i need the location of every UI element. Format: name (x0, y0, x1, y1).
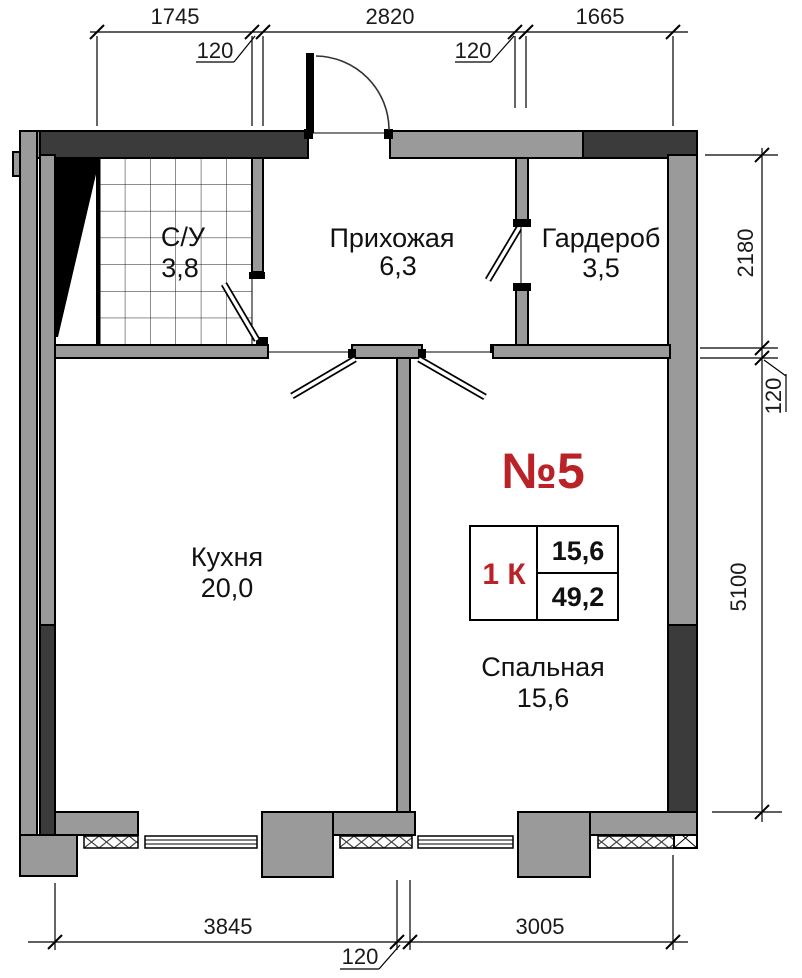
top-wall-middle-segment (390, 131, 583, 158)
top-wall-right-segment (583, 131, 697, 158)
dim-top-1665: 1665 (576, 4, 625, 29)
dim-bottom-120: 120 (342, 944, 379, 969)
wardrobe-partition-lower (516, 290, 528, 345)
bathroom-bottom-wall (55, 345, 268, 358)
right-wall-dark-segment (668, 625, 697, 830)
bedroom-window (418, 836, 513, 848)
wardrobe-partition-upper (516, 158, 528, 222)
bedroom-label: Спальная (481, 652, 605, 682)
sill-hatch-2 (340, 836, 412, 848)
dimension-chain-right: 2180 120 5100 (700, 148, 786, 822)
sill-hatch-3 (598, 836, 674, 848)
dim-right-5100: 5100 (726, 563, 751, 612)
bedroom-top-wall (493, 345, 670, 358)
wardrobe-door-cap-bottom (513, 283, 531, 291)
dim-top-120-left: 120 (197, 38, 234, 63)
total-area-cell: 49,2 (552, 582, 605, 612)
entrance-jamb-right (384, 129, 393, 139)
living-area-cell: 15,6 (552, 536, 605, 566)
kitchen-area: 20,0 (201, 573, 254, 603)
apartment-number: №5 (501, 443, 585, 499)
dim-top-1745: 1745 (151, 4, 200, 29)
dimension-chain-top: 1745 2820 1665 120 120 (90, 4, 688, 126)
kitchen-door-jamb (348, 349, 356, 358)
left-wall-inner-dark-segment (40, 625, 55, 835)
dim-right-2180: 2180 (733, 229, 758, 278)
dim-bottom-3005: 3005 (516, 914, 565, 939)
hall-center-wall-stub (352, 345, 422, 358)
kitchen-bedroom-partition (397, 358, 410, 812)
entrance-door-swing-arc (316, 56, 389, 130)
hallway-label: Прихожая (329, 223, 454, 253)
left-bottom-pier (20, 835, 77, 876)
right-wall-upper (668, 155, 697, 625)
summary-table: 1 К 15,6 49,2 (470, 526, 618, 620)
dim-top-2820: 2820 (366, 4, 415, 29)
dim-bottom-3845: 3845 (204, 914, 253, 939)
bathroom-left-wall (96, 157, 100, 345)
floor-plan-drawing: С/У 3,8 Прихожая 6,3 Гардероб 3,5 Кухня … (0, 0, 802, 978)
bathroom-right-wall (252, 158, 263, 272)
kitchen-label: Кухня (191, 542, 263, 572)
left-wall-outer-layer (20, 131, 37, 876)
entrance-door-leaf (306, 53, 314, 133)
bathroom-label: С/У (161, 222, 206, 252)
bedroom-door-jamb-left (418, 349, 426, 358)
hallway-area: 6,3 (379, 251, 417, 281)
dim-top-120-right: 120 (455, 38, 492, 63)
top-wall-left-segment (20, 131, 308, 158)
floor-plan-page: С/У 3,8 Прихожая 6,3 Гардероб 3,5 Кухня … (0, 0, 802, 978)
bedroom-area: 15,6 (517, 683, 570, 713)
left-wall-inner-layer (40, 155, 55, 625)
wardrobe-label: Гардероб (542, 223, 661, 253)
kitchen-window (145, 836, 257, 848)
sill-hatch-1 (84, 836, 138, 848)
wardrobe-area: 3,5 (582, 253, 620, 283)
facade-pier-left (262, 812, 333, 877)
rooms-count-cell: 1 К (482, 558, 526, 591)
wardrobe-door-cap-top (513, 219, 531, 227)
dim-right-120: 120 (761, 378, 786, 415)
bathroom-wall-cap (249, 272, 265, 279)
bottom-wall-segment-left (55, 812, 138, 835)
facade-pier-right (518, 812, 590, 877)
bathroom-area: 3,8 (161, 253, 199, 283)
vent-shaft-wedge (55, 157, 97, 337)
